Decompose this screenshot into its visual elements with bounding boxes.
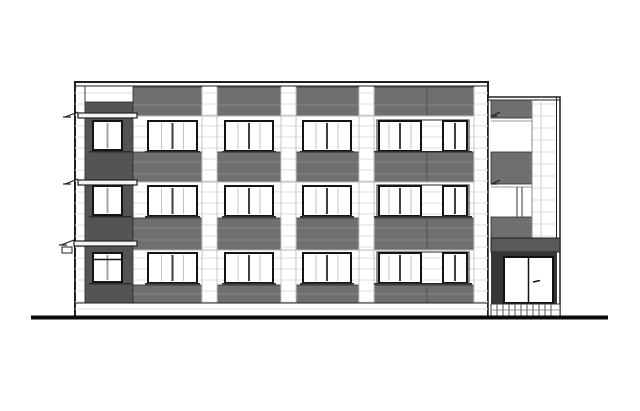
canopy-end-box <box>62 247 72 253</box>
top-band-panel <box>217 87 281 116</box>
top-band-panel <box>296 87 359 116</box>
canopy-1f <box>74 241 137 246</box>
canopy-3f <box>78 113 137 118</box>
spandrel-3f <box>296 152 359 182</box>
entrance-canopy-slab <box>491 238 560 252</box>
spandrel-2f <box>133 218 202 250</box>
spandrel-3f <box>374 152 474 182</box>
wing-panel-2f <box>491 152 532 184</box>
spandrel-2f <box>296 218 359 250</box>
spandrel-3f <box>217 152 281 182</box>
wing-panel-3f <box>491 100 532 118</box>
top-band-panel <box>133 87 202 116</box>
canopy-2f <box>78 180 137 185</box>
elevation-drawing <box>0 0 640 411</box>
vent-tick <box>61 240 74 245</box>
elevation-sheet <box>0 0 640 411</box>
wing-panel-1f <box>491 217 532 238</box>
spandrel-3f <box>133 152 202 182</box>
ground-line <box>31 316 608 320</box>
top-band-panel <box>374 87 474 116</box>
spandrel-2f <box>217 218 281 250</box>
spandrel-2f <box>374 218 474 250</box>
